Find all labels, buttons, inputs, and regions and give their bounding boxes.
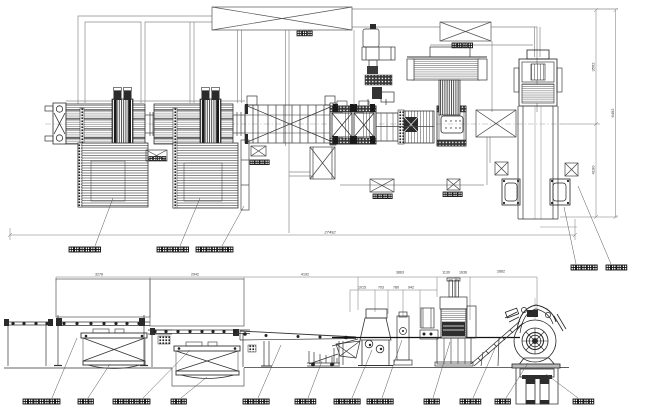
svg-text:780: 780: [393, 286, 399, 290]
svg-text:2862: 2862: [497, 270, 505, 274]
svg-text:3276: 3276: [95, 273, 103, 277]
svg-text:2942: 2942: [191, 273, 199, 277]
svg-text:4190: 4190: [591, 165, 596, 175]
svg-text:27492: 27492: [323, 230, 336, 235]
svg-text:6492: 6492: [610, 108, 615, 118]
svg-text:703: 703: [378, 286, 384, 290]
svg-text:3562: 3562: [591, 62, 596, 72]
svg-text:1636: 1636: [459, 271, 467, 275]
svg-text:4192: 4192: [301, 273, 309, 277]
svg-text:1015: 1015: [358, 286, 366, 290]
svg-text:942: 942: [408, 286, 414, 290]
svg-text:3863: 3863: [396, 271, 404, 275]
svg-text:1130: 1130: [442, 271, 450, 275]
